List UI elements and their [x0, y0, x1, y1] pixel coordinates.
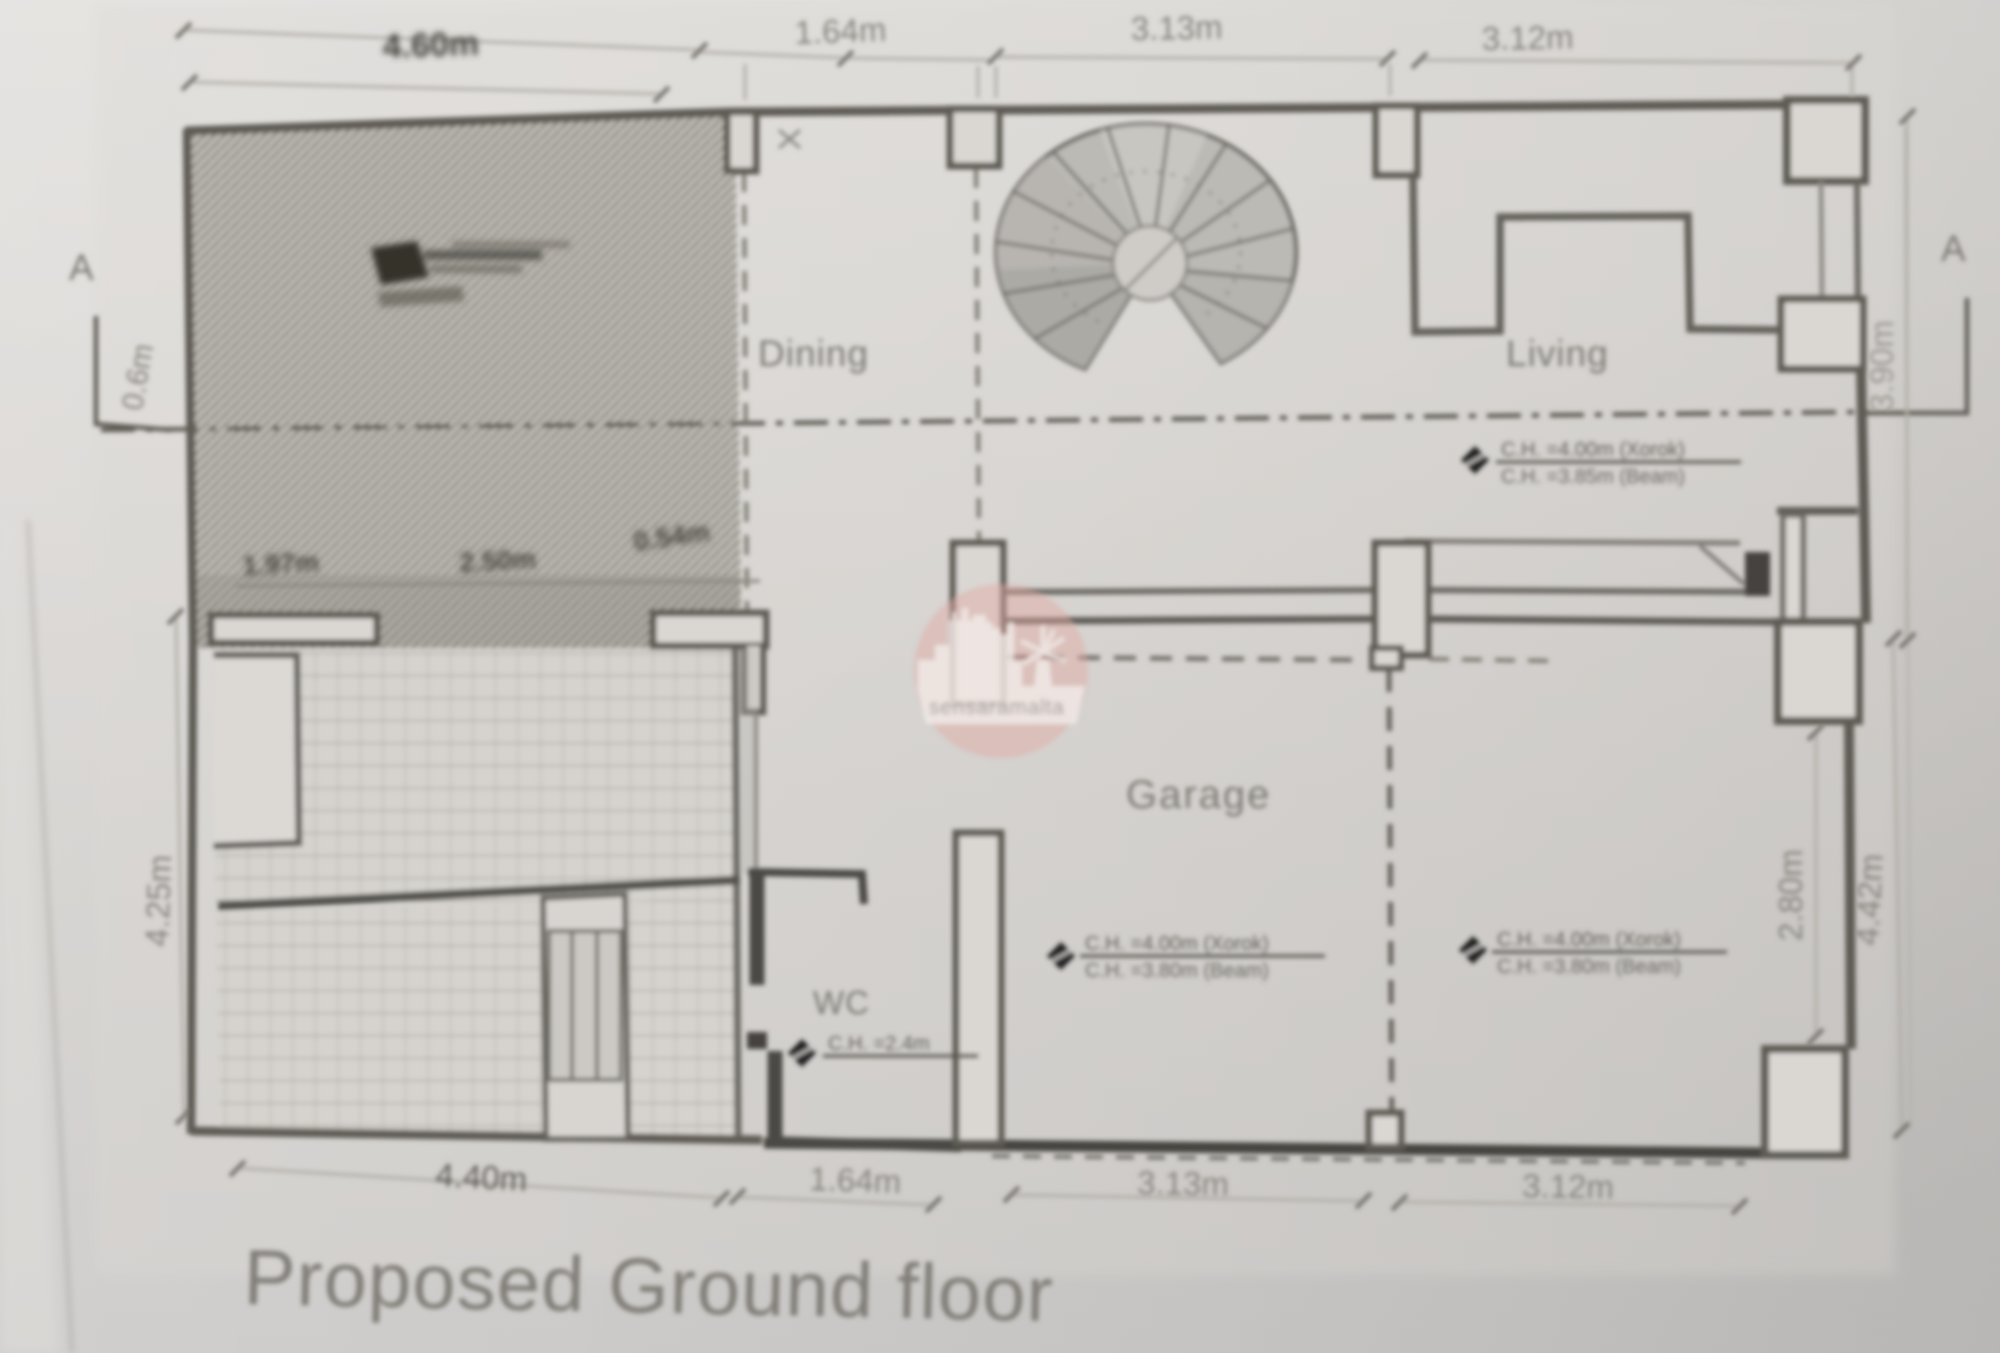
svg-text:1.64m: 1.64m — [794, 11, 887, 51]
svg-text:1.64m: 1.64m — [809, 1160, 902, 1200]
svg-text:3.13m: 3.13m — [1130, 8, 1222, 47]
svg-text:4.60m: 4.60m — [382, 25, 480, 66]
svg-text:sensaramalta: sensaramalta — [929, 696, 1065, 719]
svg-text:3.12m: 3.12m — [1481, 18, 1573, 57]
svg-text:3.13m: 3.13m — [1137, 1164, 1229, 1203]
svg-text:4.40m: 4.40m — [435, 1156, 529, 1198]
svg-text:1.97m: 1.97m — [242, 547, 320, 581]
svg-text:Living: Living — [1506, 333, 1609, 374]
svg-text:C.H. =4.00m (Xorok): C.H. =4.00m (Xorok) — [1501, 439, 1685, 461]
svg-text:C.H. =4.00m (Xorok): C.H. =4.00m (Xorok) — [1085, 933, 1269, 955]
svg-text:3.12m: 3.12m — [1522, 1167, 1614, 1206]
svg-text:C.H. =4.00m (Xorok): C.H. =4.00m (Xorok) — [1497, 929, 1681, 951]
svg-text:3.90m: 3.90m — [1863, 320, 1900, 412]
svg-text:Garage: Garage — [1126, 773, 1271, 817]
svg-text:C.H. =3.80m (Beam): C.H. =3.80m (Beam) — [1497, 956, 1681, 978]
svg-text:4.42m: 4.42m — [1848, 853, 1890, 947]
svg-text:A: A — [1941, 228, 1966, 269]
svg-text:2.50m: 2.50m — [459, 544, 537, 578]
svg-text:2.80m: 2.80m — [1772, 849, 1809, 941]
svg-text:A: A — [69, 247, 94, 288]
svg-text:4.25m: 4.25m — [138, 854, 178, 947]
svg-text:C.H. =3.85m (Beam): C.H. =3.85m (Beam) — [1501, 466, 1685, 488]
svg-text:C.H. =2.4m: C.H. =2.4m — [828, 1033, 930, 1055]
svg-text:Proposed Ground floor: Proposed Ground floor — [243, 1233, 1055, 1338]
svg-text:Dining: Dining — [758, 333, 869, 374]
svg-text:C.H. =3.80m (Beam): C.H. =3.80m (Beam) — [1085, 960, 1269, 982]
svg-text:WC: WC — [813, 984, 870, 1021]
